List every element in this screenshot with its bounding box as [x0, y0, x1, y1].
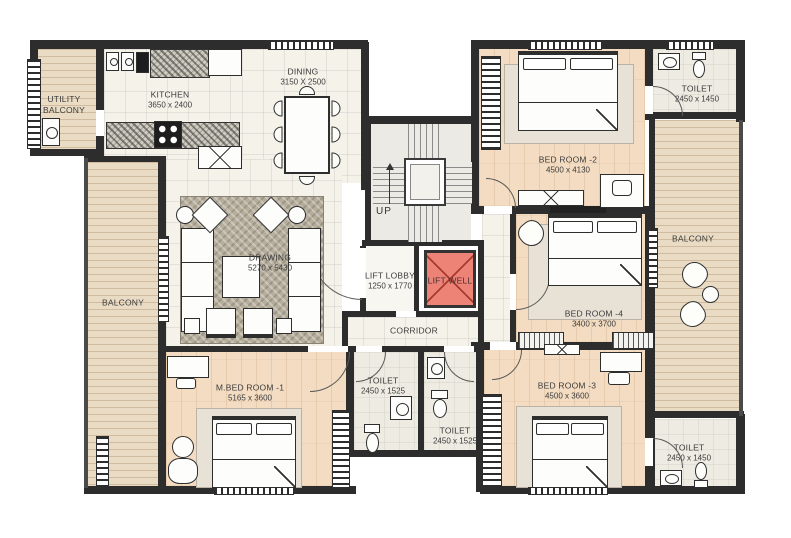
room-label-dining: DINING 3150 X 2500: [280, 66, 325, 87]
sink-symbol: [660, 470, 682, 486]
side-table-symbol: [276, 318, 292, 334]
blanket-line: [519, 102, 617, 103]
window-hatch: [481, 56, 501, 150]
blanket-fold: [620, 264, 642, 286]
balcony-railing: [84, 158, 88, 488]
wall: [645, 350, 655, 492]
sink-symbol: [427, 357, 445, 379]
wall: [365, 116, 475, 124]
fridge-symbol: [198, 146, 242, 169]
door-opening: [645, 438, 653, 466]
pillow: [536, 423, 569, 435]
wc-symbol: [429, 390, 451, 420]
ottoman-symbol: [206, 308, 236, 338]
stool-symbol: [612, 180, 632, 196]
room-label-toilet-mid-right: TOILET 2450 x 1525: [433, 425, 477, 446]
window-hatch: [268, 41, 334, 50]
room-label-bedroom-4: BED ROOM -4 3400 x 3700: [565, 308, 623, 329]
blanket-fold: [274, 466, 296, 488]
floor-hallway: [482, 214, 510, 342]
wall: [471, 49, 479, 214]
sink-symbol: [658, 53, 680, 70]
dining-table-symbol: [284, 96, 330, 174]
wall: [84, 156, 166, 162]
window-hatch: [528, 41, 602, 50]
room-label-bedroom-2: BED ROOM -2 4500 x 4130: [539, 154, 597, 175]
window-hatch: [528, 487, 608, 495]
wall: [418, 352, 424, 452]
window-hatch: [332, 410, 350, 488]
wall: [365, 124, 371, 240]
wall: [649, 118, 655, 214]
wall: [736, 414, 745, 494]
side-table-symbol: [184, 318, 200, 334]
room-label-corridor: CORRIDOR: [390, 325, 438, 336]
dresser-symbol: [544, 344, 580, 355]
door-opening: [490, 342, 516, 350]
blanket-line: [213, 459, 295, 460]
window-hatch: [214, 487, 294, 495]
room-label-toilet-top-right: TOILET 2450 x 1450: [675, 83, 719, 104]
wall: [96, 42, 104, 156]
side-table-symbol: [288, 206, 306, 224]
armchair-symbol: [168, 458, 198, 484]
balcony-railing: [739, 120, 743, 416]
room-label-toilet-bottom-right: TOILET 2450 x 1450: [667, 442, 711, 463]
room-label-balcony-right: BALCONY: [672, 233, 714, 244]
door-opening: [96, 110, 104, 136]
pillow: [216, 423, 252, 435]
bed-symbol: [518, 51, 618, 131]
kitchen-sink-unit: [121, 52, 134, 71]
wall: [736, 40, 745, 122]
kitchen-counter: [150, 49, 210, 78]
stairs-flight-up: [408, 124, 442, 162]
window-hatch: [648, 228, 658, 288]
bed-symbol: [548, 214, 642, 286]
kitchen-sink-unit: [106, 52, 119, 71]
wardrobe-symbol: [612, 332, 654, 349]
pillow: [570, 58, 613, 70]
stairs-flight-down: [408, 204, 442, 242]
sofa-symbol: [288, 228, 321, 332]
desk-symbol: [600, 352, 642, 372]
blanket-line: [533, 459, 607, 460]
pillow: [256, 423, 292, 435]
window-hatch: [96, 436, 109, 486]
pillow: [597, 221, 637, 233]
wall: [478, 246, 484, 350]
dresser-symbol: [518, 190, 584, 206]
stairs-up-label: UP: [376, 206, 392, 217]
room-label-lift-well: LIFT WELL: [428, 275, 473, 286]
room-label-toilet-mid-left: TOILET 2450 x 1525: [361, 375, 405, 396]
bed-symbol: [532, 416, 608, 488]
chair-symbol: [176, 378, 196, 389]
bed-symbol: [212, 416, 296, 488]
room-label-master-bedroom: M.BED ROOM -1 5165 x 3600: [216, 382, 284, 403]
desk-symbol: [167, 356, 209, 378]
pillow: [523, 58, 566, 70]
floor-plan: UP: [0, 0, 791, 538]
room-label-bedroom-3: BED ROOM -3 4500 x 3600: [538, 380, 596, 401]
wc-symbol: [692, 460, 710, 488]
kitchen-appliance: [136, 52, 149, 73]
door-opening: [396, 311, 416, 317]
pillow: [553, 221, 593, 233]
dining-chair: [274, 101, 283, 117]
wall: [158, 156, 166, 492]
wall: [30, 149, 104, 156]
side-table-symbol: [172, 436, 194, 458]
stairs-flight-right: [446, 162, 472, 204]
stairs-up-arrow: [389, 168, 390, 204]
dining-chair: [274, 153, 283, 169]
tv-unit-symbol: [550, 206, 606, 213]
room-label-utility-balcony: UTILITY BALCONY: [37, 94, 91, 116]
balcony-table-symbol: [702, 286, 719, 303]
stairs-landing: [404, 158, 446, 206]
room-label-drawing: DRAWING 5270 x 5430: [248, 252, 292, 273]
wall: [648, 411, 744, 418]
blanket-fold: [596, 109, 618, 131]
wc-symbol: [362, 424, 382, 456]
blanket-fold: [586, 466, 608, 488]
kitchen-counter: [208, 49, 242, 76]
stairs-up-arrowhead: [386, 163, 394, 170]
ottoman-symbol: [243, 308, 273, 338]
chair-symbol: [608, 372, 630, 385]
wc-symbol: [690, 52, 708, 80]
stove-symbol: [154, 121, 182, 148]
room-label-balcony-left: BALCONY: [102, 297, 144, 308]
washing-machine-symbol: [42, 118, 60, 146]
sink-symbol: [390, 396, 412, 420]
room-label-kitchen: KITCHEN 3650 x 2400: [148, 89, 192, 110]
wall: [84, 486, 164, 494]
blanket-line: [549, 258, 641, 259]
dining-chair: [274, 127, 283, 143]
pillow: [571, 423, 604, 435]
room-label-lift-lobby: LIFT LOBBY 1250 x 1770: [365, 270, 415, 291]
window-hatch: [666, 41, 714, 50]
sliding-door-hatch: [158, 236, 169, 322]
door-opening: [645, 86, 653, 114]
window-hatch: [482, 394, 502, 488]
